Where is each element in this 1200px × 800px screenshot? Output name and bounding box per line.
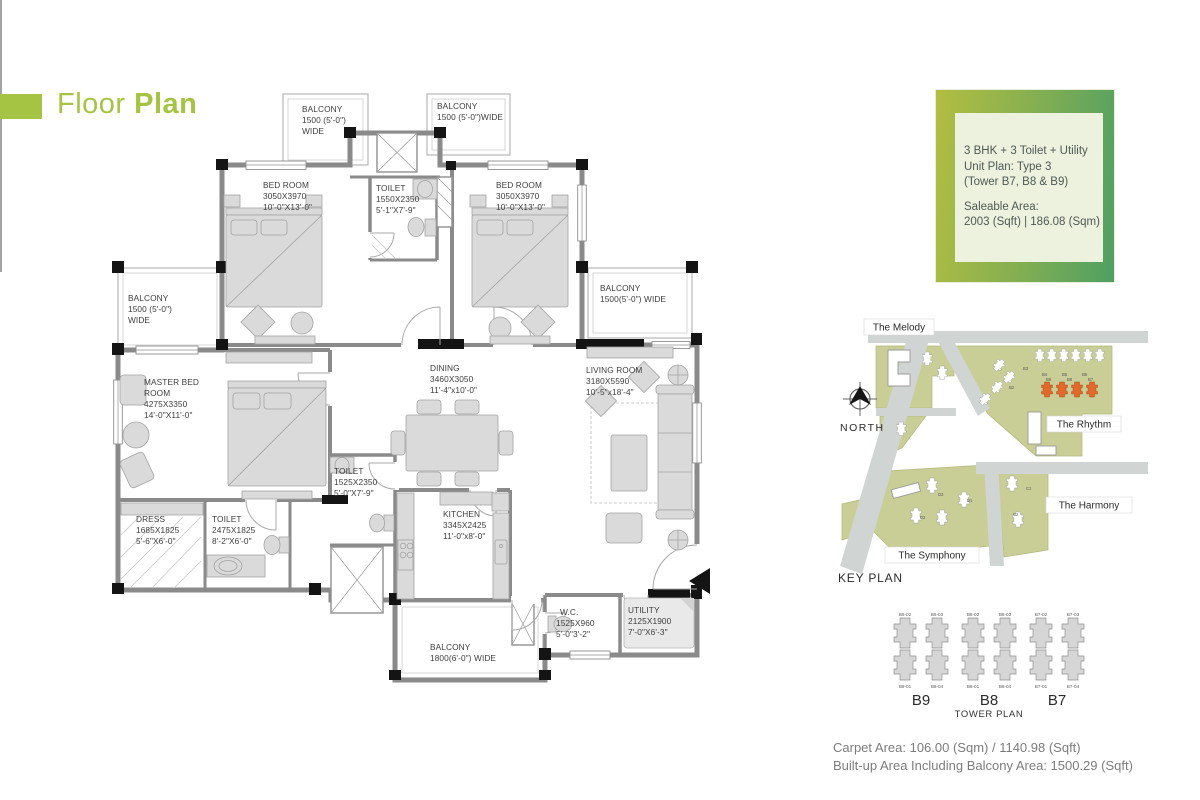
room-label: UTILITY [628, 605, 660, 615]
room-label: 3345X2425 [443, 520, 487, 530]
room-label: BED ROOM [496, 180, 542, 190]
room-label: ROOM [144, 388, 170, 398]
dining-set [391, 400, 513, 486]
room-label: 3050X3970 [496, 191, 540, 201]
bldg-mark: D1 [967, 498, 973, 503]
room-label: 1500 (5'-0") [302, 115, 346, 125]
unit-info-badge-inner: 3 BHK + 3 Toilet + Utility Unit Plan: Ty… [955, 113, 1103, 262]
room-label: 4275X3350 [144, 399, 188, 409]
room-label: 10'-0"X13'-0" [496, 202, 545, 212]
unit-label: B7-03 [1067, 612, 1080, 617]
room-label: 5'-0"X7'-9" [334, 488, 374, 498]
room-label: DINING [430, 363, 460, 373]
room-label: TOILET [376, 183, 406, 193]
bldg-mark: D3 [938, 492, 944, 497]
room-label: 2125X1900 [628, 616, 672, 626]
room-label: 14'-0"X11'-0" [144, 410, 193, 420]
unit-label: B9-04 [931, 684, 944, 689]
room-label: 3460X3050 [430, 374, 474, 384]
badge-unit-line: 3 BHK + 3 Toilet + Utility [964, 144, 1100, 160]
unit-label: B7-01 [1035, 684, 1048, 689]
bed-master [119, 352, 326, 499]
badge-unit-line: Unit Plan: Type 3 [964, 160, 1100, 176]
area-summary: Carpet Area: 106.00 (Sqm) / 1140.98 (Sqf… [833, 739, 1133, 774]
badge-unit-line: (Tower B7, B8 & B9) [964, 175, 1100, 191]
tower-plan: B9-02 B9-03 B8-02 B8-03 B7-02 B7-03 B9-0… [883, 608, 1095, 720]
room-label: 3180X5590 [586, 376, 630, 386]
room-label: LIVING ROOM [586, 365, 642, 375]
area-label-melody: The Melody [873, 323, 925, 334]
room-label: 1525X2350 [334, 477, 378, 487]
room-label: W.C. [560, 607, 578, 617]
room-label: BALCONY [128, 293, 169, 303]
built-up-area-text: Built-up Area Including Balcony Area: 15… [833, 757, 1133, 775]
room-label: 11'-4"x10'-0" [430, 385, 477, 395]
tower-label-b8: B8 [980, 692, 998, 709]
bed-left [224, 195, 322, 344]
tower-label-b9: B9 [912, 692, 930, 709]
page-edge-line [0, 0, 2, 272]
room-label: DRESS [136, 514, 165, 524]
bldg-mark: B6 [1082, 372, 1088, 377]
room-label: 5'-0"3'-2" [556, 629, 590, 639]
title-accent-bar [0, 94, 42, 119]
key-plan-caption: KEY PLAN [838, 571, 903, 585]
room-label: TOILET [334, 466, 364, 476]
tower-plan-caption: TOWER PLAN [955, 709, 1024, 720]
room-label: 1685X1825 [136, 525, 180, 535]
room-label: 1525X960 [556, 618, 595, 628]
tower-plan-tower-labels: B9 B8 B7 [912, 692, 1066, 709]
room-label: 5'-1"X7'-9" [376, 205, 416, 215]
unit-label: B8-03 [999, 612, 1012, 617]
bldg-mark: B8 [1067, 377, 1073, 382]
bldg-mark: B9 [1046, 377, 1052, 382]
bldg-mark: C2 [1013, 512, 1019, 517]
key-plan: B3 B2 B4 B5 B6 B9 B8 B7 D3 D1 D2 C1 C2 T… [836, 316, 1151, 601]
bldg-mark: B2 [1009, 385, 1015, 390]
unit-label: B7-02 [1035, 612, 1048, 617]
carpet-area-text: Carpet Area: 106.00 (Sqm) / 1140.98 (Sqf… [833, 739, 1133, 757]
badge-saleable-line: 2003 (Sqft) | 186.08 (Sqm) [964, 215, 1100, 231]
room-label: BALCONY [302, 104, 343, 114]
badge-saleable-line: Saleable Area: [964, 200, 1100, 216]
room-label: 7'-0"X6'-3" [628, 627, 668, 637]
bldg-mark: D2 [920, 515, 926, 520]
room-label: KITCHEN [443, 509, 480, 519]
room-label: BALCONY [600, 283, 641, 293]
room-label: TOILET [212, 514, 242, 524]
north-compass-icon [843, 382, 877, 416]
unit-label: B8-04 [999, 684, 1012, 689]
unit-label: B9-02 [899, 612, 912, 617]
area-label-symphony: The Symphony [898, 551, 965, 562]
room-label: MASTER BED [144, 377, 199, 387]
tower-plan-buildings [894, 618, 1084, 680]
bldg-mark: B3 [1023, 366, 1029, 371]
room-label: 1500 (5'-0") [128, 304, 172, 314]
room-label: 1500(5'-0") WIDE [600, 294, 666, 304]
room-label: 10'-5"x18'-4" [586, 387, 634, 397]
tower-plan-unit-labels: B9-02 B9-03 B8-02 B8-03 B7-02 B7-03 B9-0… [899, 612, 1080, 689]
unit-label: B9-01 [899, 684, 912, 689]
room-label: BED ROOM [263, 180, 309, 190]
unit-label: B8-02 [967, 612, 980, 617]
floor-plan-page: Floor Plan [0, 0, 1200, 800]
room-label: BALCONY [437, 101, 478, 111]
unit-label: B8-01 [967, 684, 980, 689]
room-label: 1500 (5'-0")WIDE [437, 112, 503, 122]
room-label: 3050X3970 [263, 191, 307, 201]
room-label: 1800(6'-0") WIDE [430, 653, 496, 663]
room-label: 5'-6"X6'-0" [136, 536, 176, 546]
bldg-mark: C1 [1026, 486, 1032, 491]
unit-label: B9-03 [931, 612, 944, 617]
unit-info-badge: 3 BHK + 3 Toilet + Utility Unit Plan: Ty… [936, 90, 1114, 282]
room-label: 10'-0"X13'-0" [263, 202, 312, 212]
unit-label: B7-04 [1067, 684, 1080, 689]
tower-label-b7: B7 [1048, 692, 1066, 709]
room-label: 11'-0"x8'-0" [443, 531, 485, 541]
room-label: WIDE [302, 126, 324, 136]
area-label-harmony: The Harmony [1059, 501, 1120, 512]
room-label: 2475X1825 [212, 525, 256, 535]
area-label-rhythm: The Rhythm [1057, 420, 1111, 431]
room-label: BALCONY [430, 642, 471, 652]
room-label: 8'-2"X6'-0" [212, 536, 252, 546]
north-label: NORTH [840, 422, 885, 434]
room-label: 1550X2350 [376, 194, 420, 204]
bldg-mark: B7 [1088, 377, 1094, 382]
floor-plan-drawing: BALCONY 1500 (5'-0") WIDE BALCONY 1500 (… [100, 85, 745, 720]
bed-right [470, 195, 568, 344]
room-label: WIDE [128, 315, 150, 325]
